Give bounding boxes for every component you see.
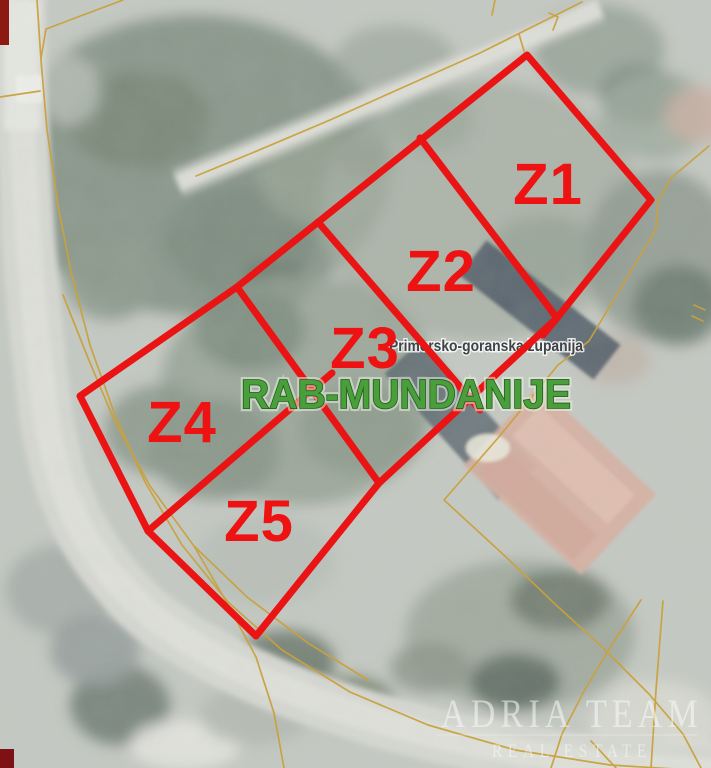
watermark-line2: REAL ESTATE: [492, 741, 652, 762]
place-label: RAB-MUNDANIJE: [241, 371, 571, 417]
parcel-label-z5: Z5: [224, 489, 294, 554]
aerial-map: Primorsko-goranska županija Z1 Z2 Z3 Z4 …: [0, 0, 711, 768]
watermark-line1: ADRIA TEAM: [441, 691, 703, 736]
corner-artifact-top-left: [0, 0, 9, 45]
parcel-label-z2: Z2: [406, 239, 476, 304]
corner-artifact-bottom-left: [0, 749, 14, 768]
parcel-label-z1: Z1: [513, 152, 583, 217]
place-label-group: RAB-MUNDANIJE RAB-MUNDANIJE: [241, 371, 571, 417]
map-image: Primorsko-goranska županija Z1 Z2 Z3 Z4 …: [0, 0, 711, 768]
parcel-label-z4: Z4: [147, 390, 217, 455]
